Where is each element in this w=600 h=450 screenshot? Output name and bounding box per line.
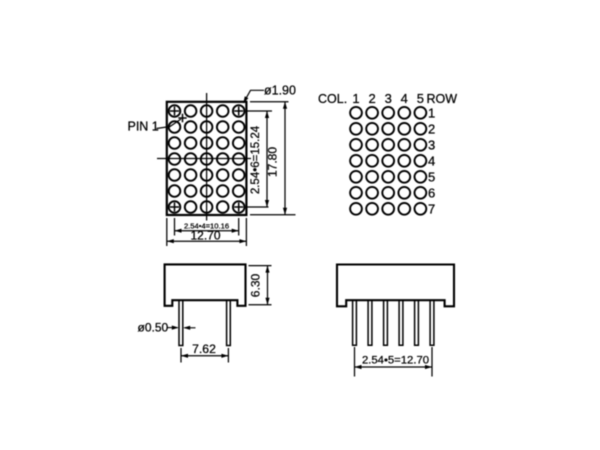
svg-text:17.80: 17.80 [266, 147, 280, 177]
svg-text:7.62: 7.62 [192, 342, 216, 356]
svg-text:6.30: 6.30 [249, 273, 263, 297]
svg-text:3: 3 [385, 91, 392, 106]
svg-text:5: 5 [428, 170, 435, 185]
svg-text:4: 4 [401, 91, 408, 106]
svg-text:2.54•5=12.70: 2.54•5=12.70 [362, 355, 429, 367]
svg-text:2: 2 [368, 91, 375, 106]
svg-text:ø0.50: ø0.50 [138, 321, 169, 335]
svg-text:ROW: ROW [427, 92, 458, 106]
svg-text:12.70: 12.70 [190, 228, 220, 242]
svg-text:7: 7 [428, 202, 435, 217]
svg-text:2.54•6=15.24: 2.54•6=15.24 [250, 125, 262, 194]
svg-text:3: 3 [428, 138, 435, 153]
svg-text:1: 1 [352, 91, 359, 106]
svg-text:6: 6 [428, 186, 435, 201]
svg-text:COL.: COL. [318, 92, 347, 106]
svg-text:ø1.90: ø1.90 [264, 84, 296, 98]
svg-text:PIN 1: PIN 1 [128, 120, 159, 134]
svg-text:4: 4 [428, 154, 435, 169]
svg-text:1: 1 [428, 106, 435, 121]
svg-text:5: 5 [417, 91, 424, 106]
svg-text:2: 2 [428, 122, 435, 137]
